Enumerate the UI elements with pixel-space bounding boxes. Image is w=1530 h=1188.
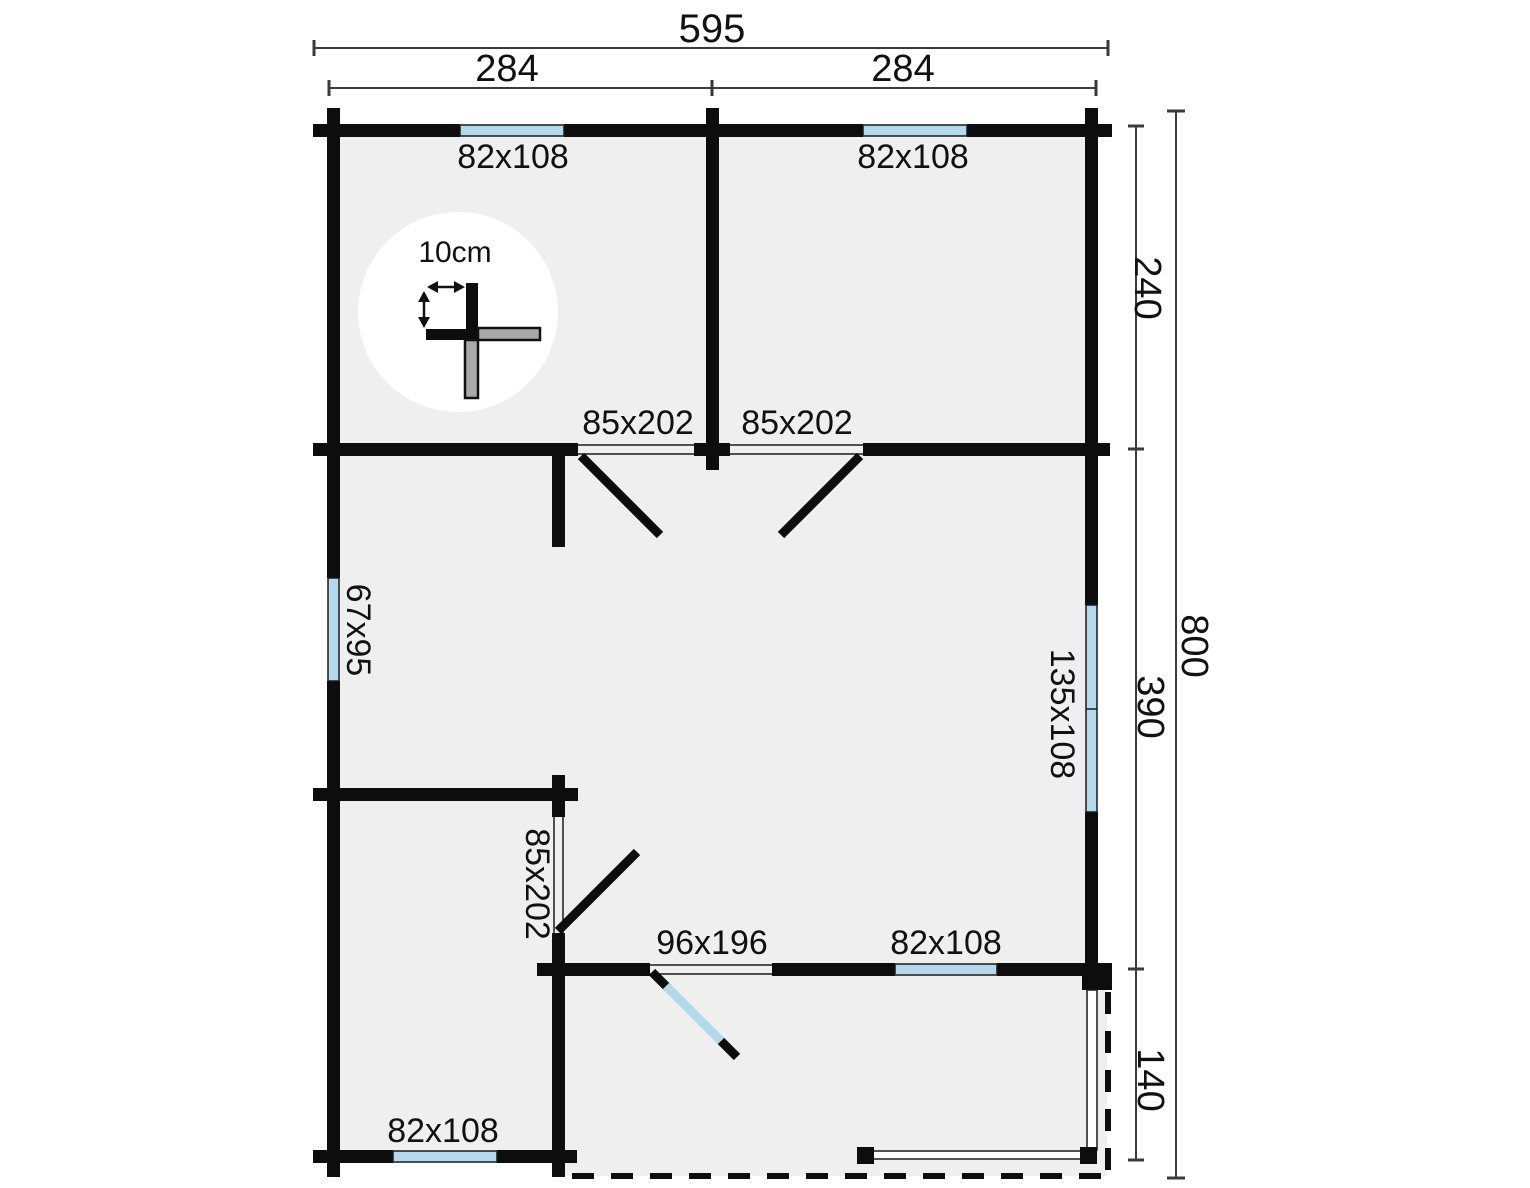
wall-interior-lower-left <box>313 788 578 801</box>
porch-post-left <box>857 1147 874 1164</box>
wall-right-1 <box>1085 108 1098 605</box>
railing-bottom <box>866 1151 1085 1159</box>
label-window-bottom-right: 82x108 <box>890 924 1002 962</box>
label-span-top-left: 284 <box>475 48 538 90</box>
label-overall-height: 800 <box>1173 614 1215 677</box>
label-window-top-right: 82x108 <box>857 138 969 176</box>
label-window-side-left: 67x95 <box>339 584 377 677</box>
wall-bottom-main-3 <box>997 963 1085 976</box>
window-bottom-right <box>895 964 997 975</box>
scale-wall-horizontal-black <box>426 329 467 340</box>
floor-plan-svg: 595 284 284 82x108 82x108 10cm 85x202 85… <box>0 0 1530 1188</box>
wall-center-cross <box>694 443 730 456</box>
scale-wall-horizontal-gray <box>478 328 540 340</box>
wall-left-2 <box>327 681 340 1177</box>
label-window-side-right: 135x108 <box>1043 649 1081 779</box>
label-span-top-right: 284 <box>871 48 934 90</box>
wall-interior-upper-left <box>313 443 578 456</box>
label-door-interior-left: 85x202 <box>582 404 694 442</box>
wall-left-1 <box>327 108 340 578</box>
railing-right <box>1087 990 1097 1150</box>
label-window-top-left: 82x108 <box>457 138 569 176</box>
scale-wall-vertical-black <box>466 283 478 340</box>
label-window-bottom-left: 82x108 <box>387 1112 499 1150</box>
window-top-left <box>460 125 564 136</box>
label-span-right-top: 240 <box>1126 256 1168 319</box>
wall-interior-upper-right <box>863 443 1110 456</box>
label-span-right-middle: 390 <box>1129 675 1171 738</box>
label-overall-width: 595 <box>679 7 746 51</box>
window-top-right <box>863 125 967 136</box>
scale-wall-vertical-gray <box>465 340 478 398</box>
label-span-right-bottom: 140 <box>1129 1048 1171 1111</box>
wall-interior-stub-down <box>552 443 565 547</box>
label-scale: 10cm <box>418 236 491 269</box>
floor-porch <box>560 970 1107 1176</box>
wall-corner-block-bottom-right <box>1082 963 1112 990</box>
label-door-interior-bottom: 85x202 <box>518 828 556 940</box>
wall-bottom-left-room-1 <box>313 1150 393 1163</box>
wall-interior-vertical-1 <box>552 775 565 817</box>
floor-plan: 595 284 284 82x108 82x108 10cm 85x202 85… <box>0 0 1530 1188</box>
wall-interior-vertical-2 <box>552 933 565 1177</box>
window-bottom-left <box>393 1151 497 1162</box>
label-door-interior-right: 85x202 <box>741 404 853 442</box>
window-side-left <box>328 578 339 681</box>
label-door-entry: 96x196 <box>656 924 768 962</box>
wall-center-vertical <box>706 108 719 470</box>
porch-post-right <box>1080 1147 1097 1164</box>
wall-bottom-main-2 <box>772 963 895 976</box>
